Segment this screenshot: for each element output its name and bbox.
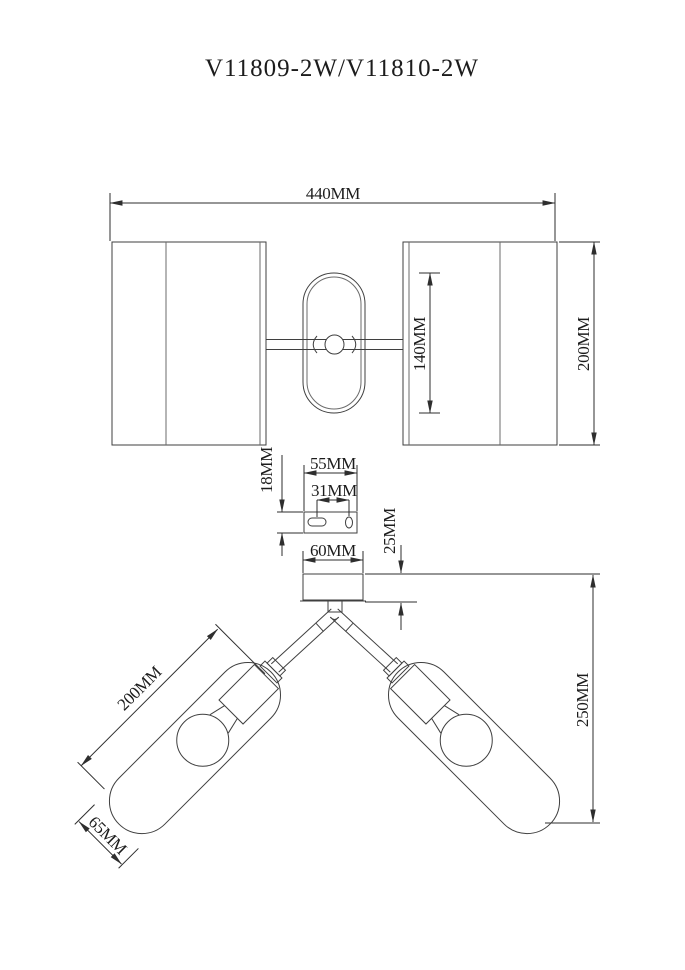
dim-bracket-width: 55MM [310, 454, 356, 473]
canopy [300, 574, 366, 612]
v-arms [271, 609, 397, 672]
left-socket [219, 665, 278, 724]
front-left-shade [112, 242, 266, 445]
dim-bracket-height: 18MM [257, 447, 276, 493]
dim-front-backplate-height: 140MM [410, 317, 429, 371]
dim-front-overall-width: 440MM [306, 184, 360, 203]
left-glass-tube [96, 649, 294, 847]
right-bulb [429, 703, 503, 777]
pivot-circle [325, 335, 344, 354]
front-view: 440MM 200MM [110, 184, 600, 445]
dim-overall-drop: 250MM [573, 673, 592, 727]
dim-canopy-height: 25MM [380, 508, 399, 554]
bottom-view: 60MM 25MM 250MM [32, 508, 600, 869]
dim-bracket-hole-spacing: 31MM [311, 481, 357, 500]
mounting-bracket-view: 55MM 31MM 18MM [257, 447, 357, 556]
bracket-hole [346, 517, 353, 528]
drawing-title: V11809-2W/V11810-2W [205, 55, 479, 82]
front-arm [266, 335, 403, 354]
left-tube-shade: 200MM 65MM [32, 600, 302, 870]
dim-front-shade-height: 200MM [574, 317, 593, 371]
left-bulb [166, 703, 240, 777]
technical-drawing: V11809-2W/V11810-2W 440MM [0, 0, 685, 970]
right-glass-tube [375, 649, 573, 847]
left-socket-collar [267, 658, 285, 676]
drawing-sheet: V11809-2W/V11810-2W 440MM [0, 0, 685, 970]
right-socket-collar [384, 658, 402, 676]
bracket-slot [308, 518, 326, 526]
right-tube-shade [367, 641, 573, 847]
dim-canopy-width: 60MM [310, 541, 356, 560]
right-socket [391, 665, 450, 724]
dim-shade-diameter: 65MM [85, 812, 131, 858]
dim-shade-length: 200MM [114, 662, 166, 714]
